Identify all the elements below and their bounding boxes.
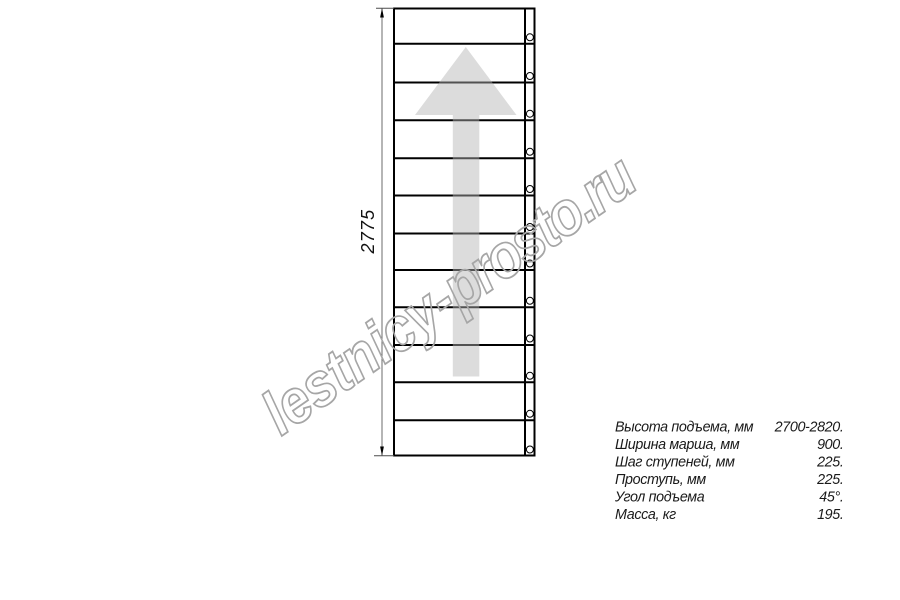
svg-text:Высота подъема, мм: Высота подъема, мм [615,420,754,436]
svg-text:225.: 225. [816,455,843,471]
svg-text:2700-2820.: 2700-2820. [774,420,844,436]
svg-text:195.: 195. [817,507,843,523]
svg-text:2775: 2775 [358,209,378,255]
svg-text:225.: 225. [816,472,843,488]
svg-text:Ширина марша, мм: Ширина марша, мм [615,437,740,453]
svg-text:900.: 900. [817,437,843,453]
svg-text:45°.: 45°. [819,490,843,506]
svg-text:Масса, кг: Масса, кг [615,507,676,523]
svg-text:Проступь, мм: Проступь, мм [615,472,706,488]
svg-text:Шаг ступеней, мм: Шаг ступеней, мм [615,455,735,471]
svg-text:Угол подъема: Угол подъема [614,490,705,506]
